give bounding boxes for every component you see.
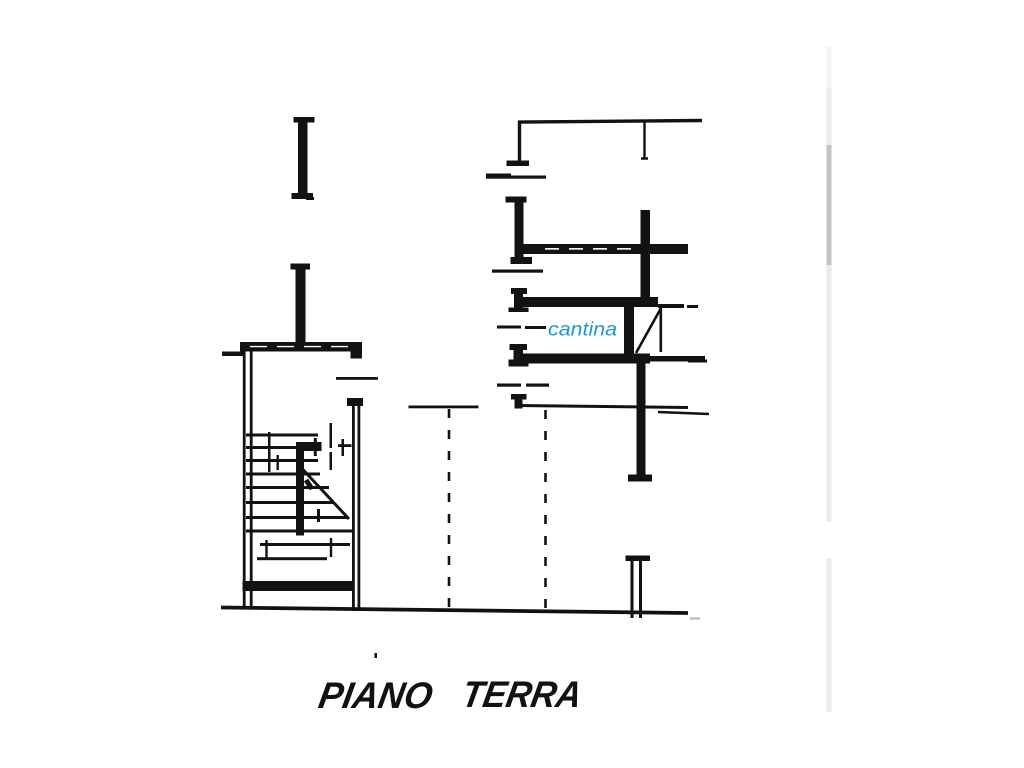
svg-text:cantina: cantina	[548, 319, 617, 341]
svg-text:TERRA: TERRA	[459, 673, 585, 715]
svg-text:PIANO: PIANO	[316, 674, 436, 716]
